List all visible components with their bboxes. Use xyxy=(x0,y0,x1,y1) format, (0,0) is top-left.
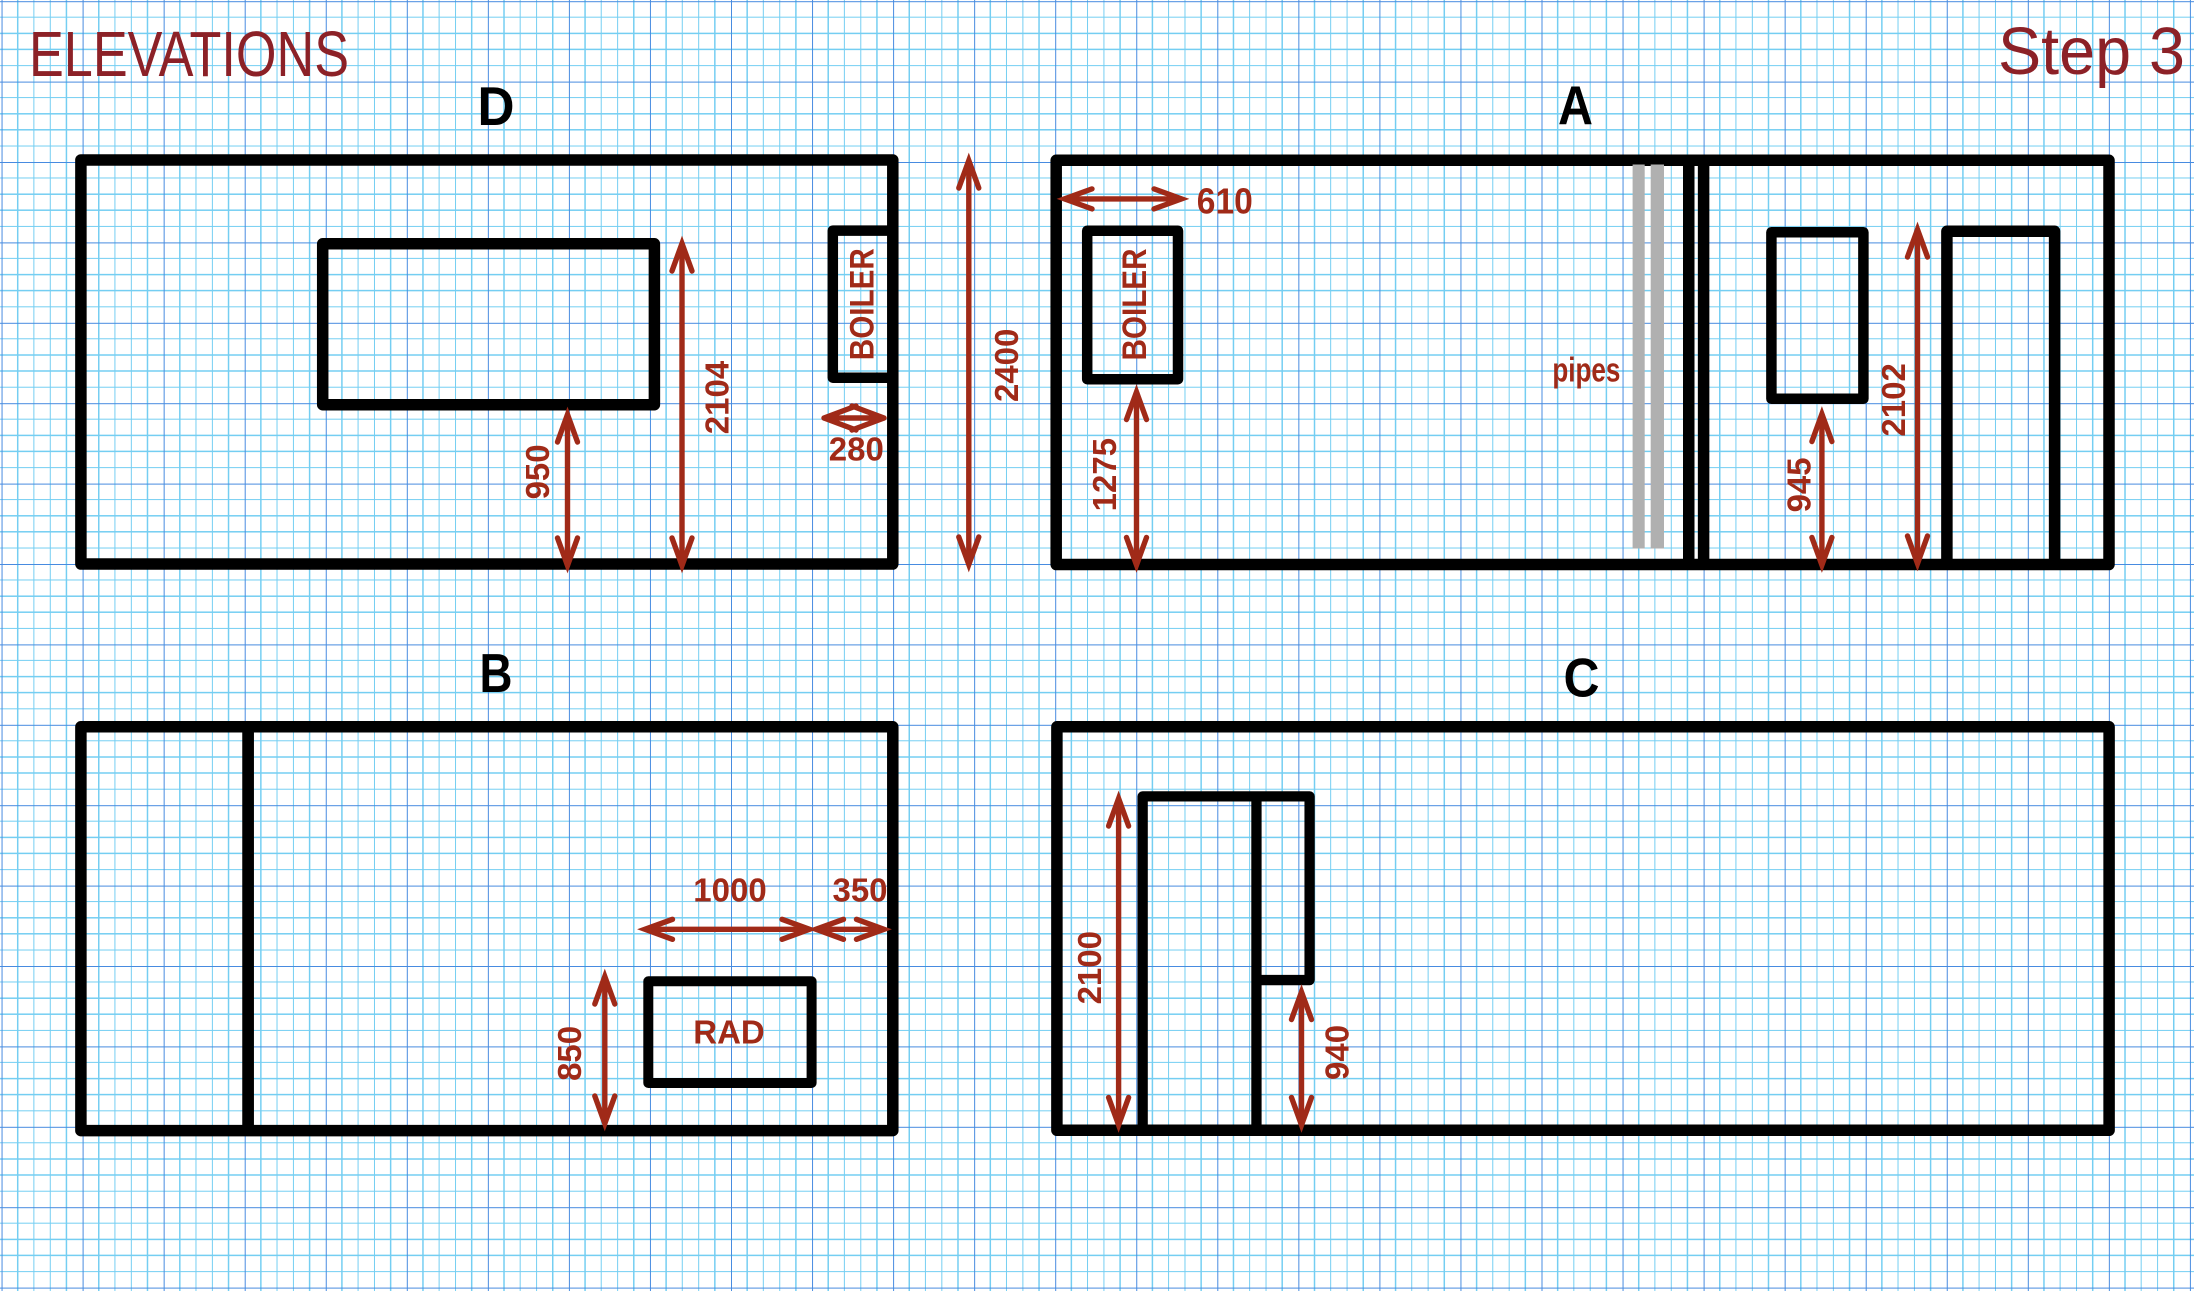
svg-text:Step 3: Step 3 xyxy=(1998,14,2185,89)
svg-text:610: 610 xyxy=(1197,181,1253,222)
svg-text:2102: 2102 xyxy=(1875,363,1912,436)
svg-text:1275: 1275 xyxy=(1086,438,1123,511)
svg-text:2400: 2400 xyxy=(988,329,1025,402)
svg-text:A: A xyxy=(1558,74,1593,136)
svg-text:2100: 2100 xyxy=(1071,931,1108,1004)
svg-text:950: 950 xyxy=(519,444,556,499)
svg-text:350: 350 xyxy=(832,872,887,909)
svg-text:C: C xyxy=(1564,647,1600,709)
svg-text:pipes: pipes xyxy=(1552,352,1620,390)
svg-text:280: 280 xyxy=(829,431,884,468)
svg-text:850: 850 xyxy=(551,1026,588,1081)
svg-text:ELEVATIONS: ELEVATIONS xyxy=(29,18,349,90)
svg-text:D: D xyxy=(478,75,515,137)
svg-text:2104: 2104 xyxy=(699,360,736,434)
svg-text:B: B xyxy=(480,642,513,704)
svg-text:1000: 1000 xyxy=(693,872,766,909)
svg-text:BOILER: BOILER xyxy=(843,248,881,360)
svg-text:RAD: RAD xyxy=(693,1014,765,1051)
svg-text:BOILER: BOILER xyxy=(1116,249,1154,361)
svg-text:945: 945 xyxy=(1781,457,1818,512)
svg-text:940: 940 xyxy=(1319,1025,1356,1080)
